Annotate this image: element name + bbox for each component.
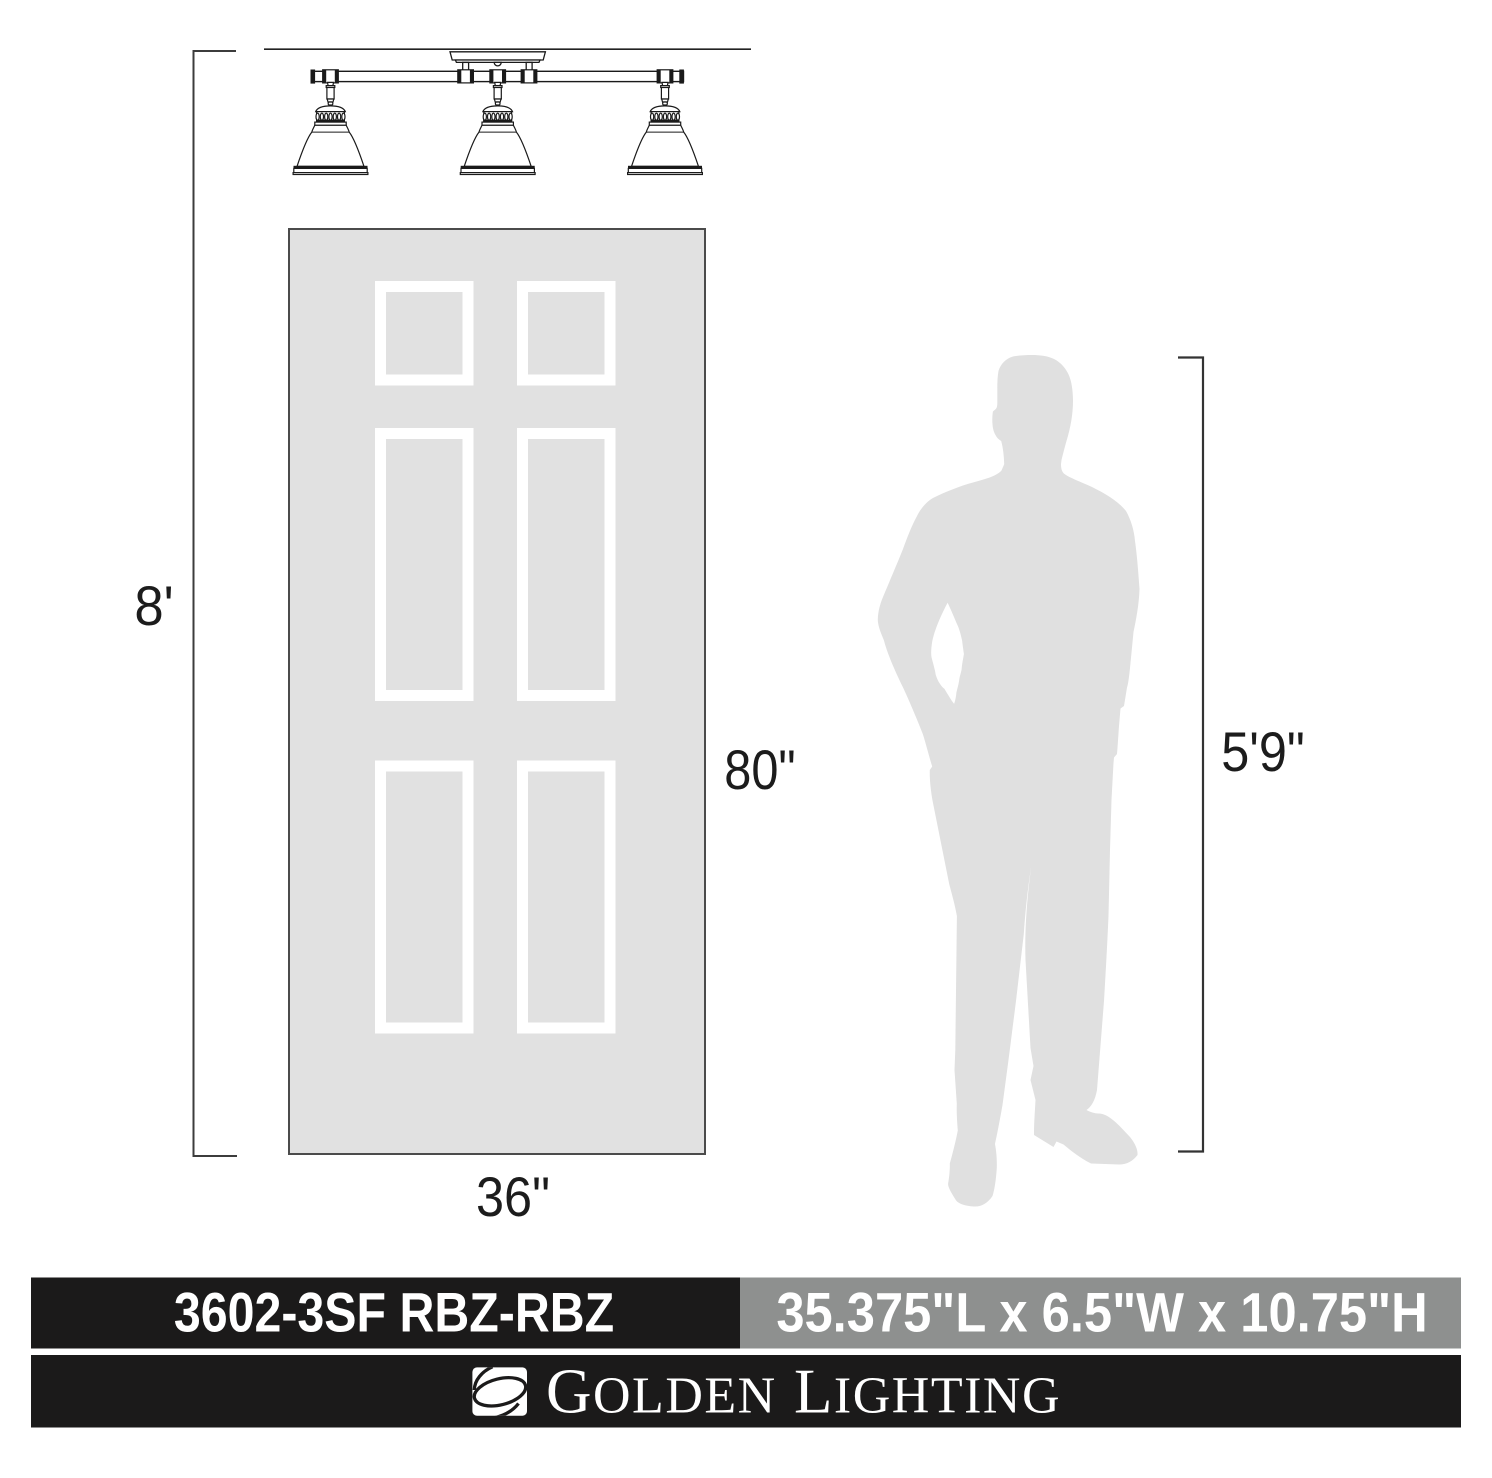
svg-text:8': 8' xyxy=(134,575,173,638)
svg-text:3602-3SF RBZ-RBZ: 3602-3SF RBZ-RBZ xyxy=(174,1282,614,1344)
svg-text:5'9": 5'9" xyxy=(1221,722,1305,784)
svg-text:GOLDEN LIGHTING: GOLDEN LIGHTING xyxy=(546,1357,1061,1427)
svg-text:35.375"L x 6.5"W x 10.75"H: 35.375"L x 6.5"W x 10.75"H xyxy=(776,1282,1427,1344)
svg-text:80": 80" xyxy=(724,739,795,802)
svg-text:36": 36" xyxy=(476,1167,550,1229)
